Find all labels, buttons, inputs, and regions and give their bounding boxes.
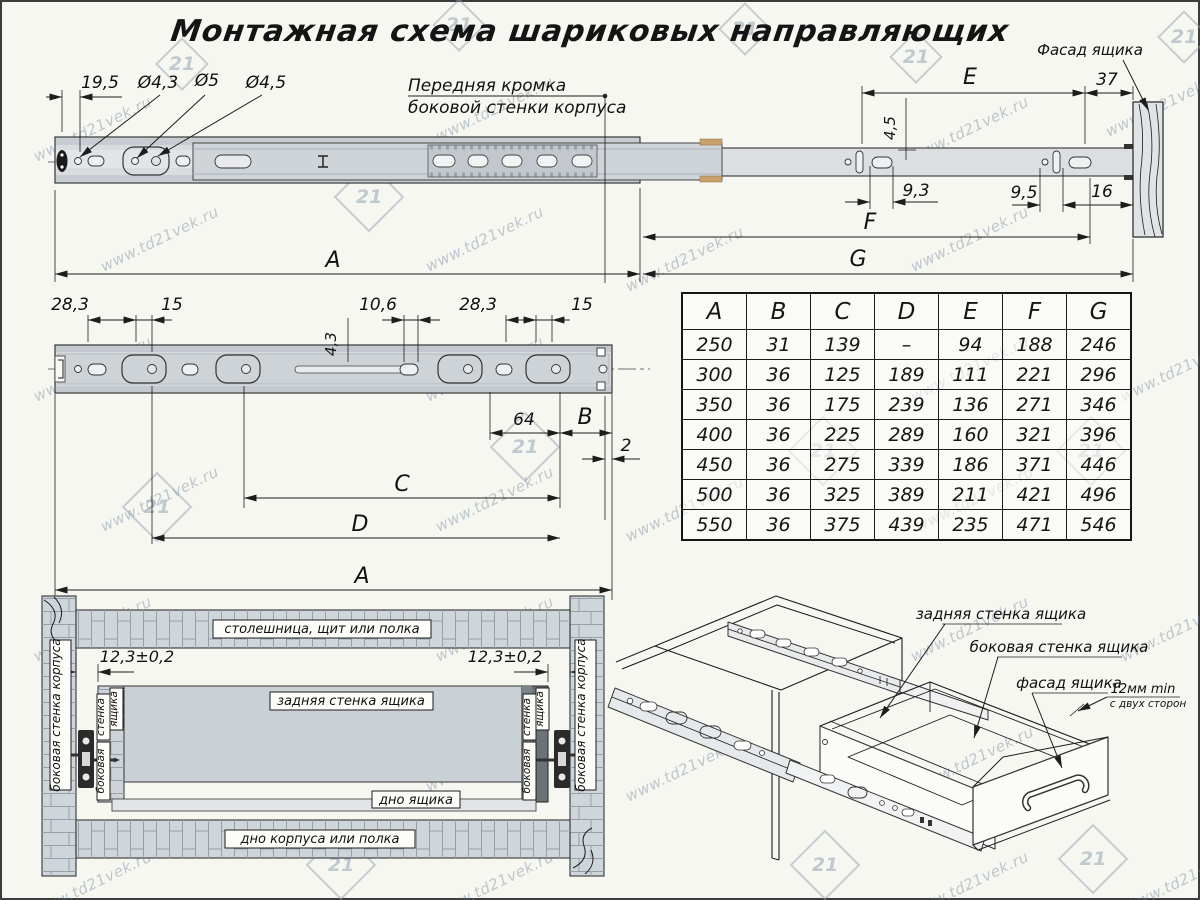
table-cell: 375 (811, 510, 875, 541)
table-header-cell: C (811, 293, 875, 330)
iso-label-rear-wall: задняя стенка ящика (916, 605, 1086, 623)
drawer-front-block (1133, 102, 1163, 237)
size-table-row: 400 36 225 289 160 321 396 (682, 420, 1131, 450)
front-edge-label-2: боковой стенки корпуса (408, 98, 626, 118)
table-cell: 396 (1067, 420, 1132, 450)
size-table-row: 550 36 375 439 235 471 546 (682, 510, 1131, 541)
table-cell: 235 (939, 510, 1003, 541)
table-cell: 389 (875, 480, 939, 510)
iso-label-gap-1: 12мм min (1111, 682, 1176, 697)
dim-E: E (963, 65, 977, 90)
table-cell: 421 (1003, 480, 1067, 510)
table-cell: 36 (747, 390, 811, 420)
table-cell: 31 (747, 330, 811, 360)
table-cell: 350 (682, 390, 747, 420)
iso-upper-slide (728, 622, 988, 720)
table-header-cell: E (939, 293, 1003, 330)
table-cell: 400 (682, 420, 747, 450)
dim-d4-5: Ø4,5 (245, 73, 286, 93)
dim-19-5: 19,5 (81, 73, 119, 93)
dim-37: 37 (1096, 70, 1118, 90)
tolerance-right: 12,3±0,2 (468, 647, 542, 666)
dim-A-top: A (323, 248, 340, 273)
table-cell: 136 (939, 390, 1003, 420)
table-cell: 211 (939, 480, 1003, 510)
table-cell: 300 (682, 360, 747, 390)
dim-28-3-right: 28,3 (459, 295, 497, 315)
label-drawer-side-word3-right: ящика (534, 691, 546, 727)
label-drawer-side-word2-right: стенка (521, 698, 533, 736)
table-cell: 321 (1003, 420, 1067, 450)
table-cell: 271 (1003, 390, 1067, 420)
dim-10-6: 10,6 (359, 295, 397, 315)
table-cell: 496 (1067, 480, 1132, 510)
table-cell: 94 (939, 330, 1003, 360)
facade-label: Фасад ящика (1037, 41, 1143, 59)
table-cell: 36 (747, 360, 811, 390)
label-body-side-right: боковая стенка корпуса (574, 638, 588, 791)
table-cell: 221 (1003, 360, 1067, 390)
iso-label-side-wall: боковая стенка ящика (970, 638, 1149, 656)
table-cell: 339 (875, 450, 939, 480)
table-cell: 36 (747, 420, 811, 450)
table-cell: 546 (1067, 510, 1132, 541)
label-top-panel: столешница, щит или полка (224, 622, 419, 637)
dim-64: 64 (513, 410, 535, 430)
table-cell: 188 (1003, 330, 1067, 360)
label-body-bottom: дно корпуса или полка (240, 832, 400, 847)
dim-28-3-left: 28,3 (51, 295, 89, 315)
table-header-cell: G (1067, 293, 1132, 330)
table-cell: 36 (747, 480, 811, 510)
table-cell: 111 (939, 360, 1003, 390)
size-table-header-row: A B C D E F G (682, 293, 1131, 330)
table-cell: 325 (811, 480, 875, 510)
label-drawer-side-word2-left: стенка (95, 698, 107, 736)
table-cell: 500 (682, 480, 747, 510)
table-cell: 289 (875, 420, 939, 450)
table-cell: – (875, 330, 939, 360)
table-header-cell: D (875, 293, 939, 330)
tolerance-left: 12,3±0,2 (100, 647, 174, 666)
table-cell: 346 (1067, 390, 1132, 420)
table-cell: 250 (682, 330, 747, 360)
table-cell: 450 (682, 450, 747, 480)
dim-G: G (849, 247, 866, 272)
iso-label-facade: фасад ящика (1016, 674, 1122, 692)
dim-4-3-vert: 4,3 (322, 332, 340, 356)
table-header-cell: F (1003, 293, 1067, 330)
profile-view-rail-drawing: 28,3 15 10,6 4,3 28,3 15 64 B 2 C D A (48, 295, 650, 600)
size-table-row: 300 36 125 189 111 221 296 (682, 360, 1131, 390)
table-cell: 371 (1003, 450, 1067, 480)
dim-C: C (394, 472, 410, 497)
table-cell: 275 (811, 450, 875, 480)
table-cell: 189 (875, 360, 939, 390)
iso-facade (973, 737, 1110, 850)
table-cell: 471 (1003, 510, 1067, 541)
size-table: A B C D E F G 250 31 139 – 94 188 246 30… (681, 292, 1132, 541)
label-body-side-left: боковая стенка корпуса (49, 638, 63, 791)
dim-4-5-vert: 4,5 (881, 116, 899, 140)
dim-F: F (864, 210, 877, 235)
dim-9-3: 9,3 (902, 181, 929, 201)
section-view-drawing: 12,3±0,2 12,3±0,2 столешница, щит или по… (42, 596, 604, 876)
dim-16: 16 (1091, 182, 1113, 202)
dim-A-profile: A (352, 564, 369, 589)
iso-label-gap-2: с двух сторон (1110, 698, 1187, 710)
dim-d5: Ø5 (194, 71, 219, 91)
table-cell: 246 (1067, 330, 1132, 360)
dim-d4-3: Ø4,3 (137, 73, 178, 93)
table-cell: 239 (875, 390, 939, 420)
iso-view-drawing: задняя стенка ящика боковая стенка ящика… (608, 596, 1186, 860)
dim-2: 2 (621, 436, 632, 456)
table-header-cell: B (747, 293, 811, 330)
table-cell: 550 (682, 510, 747, 541)
dim-D: D (352, 512, 369, 537)
dim-9-5: 9,5 (1010, 183, 1037, 203)
label-drawer-side-word1-left: боковая (95, 749, 107, 794)
table-cell: 296 (1067, 360, 1132, 390)
size-table-row: 350 36 175 239 136 271 346 (682, 390, 1131, 420)
table-cell: 446 (1067, 450, 1132, 480)
label-drawer-side-word1-right: боковая (521, 749, 533, 794)
dim-15-left: 15 (161, 295, 183, 315)
table-cell: 439 (875, 510, 939, 541)
top-view-slide-drawing: 19,5 Ø4,3 Ø5 Ø4,5 Передняя кромка боково… (46, 41, 1163, 283)
table-header-cell: A (682, 293, 747, 330)
table-cell: 186 (939, 450, 1003, 480)
size-table-row: 500 36 325 389 211 421 496 (682, 480, 1131, 510)
label-drawer-bottom: дно ящика (378, 793, 453, 808)
table-cell: 175 (811, 390, 875, 420)
table-cell: 160 (939, 420, 1003, 450)
table-cell: 36 (747, 510, 811, 541)
table-cell: 36 (747, 450, 811, 480)
label-rear-wall: задняя стенка ящика (277, 694, 425, 709)
dim-15-right: 15 (571, 295, 593, 315)
table-cell: 125 (811, 360, 875, 390)
table-cell: 139 (811, 330, 875, 360)
front-edge-label-1: Передняя кромка (408, 76, 566, 96)
dim-B: B (577, 405, 592, 430)
label-drawer-side-word3-left: ящика (108, 691, 120, 727)
drawing-sheet: www.td21vek.ru www.td21vek.ru www.td21ve… (0, 0, 1200, 900)
size-table-row: 450 36 275 339 186 371 446 (682, 450, 1131, 480)
table-cell: 225 (811, 420, 875, 450)
size-table-row: 250 31 139 – 94 188 246 (682, 330, 1131, 360)
